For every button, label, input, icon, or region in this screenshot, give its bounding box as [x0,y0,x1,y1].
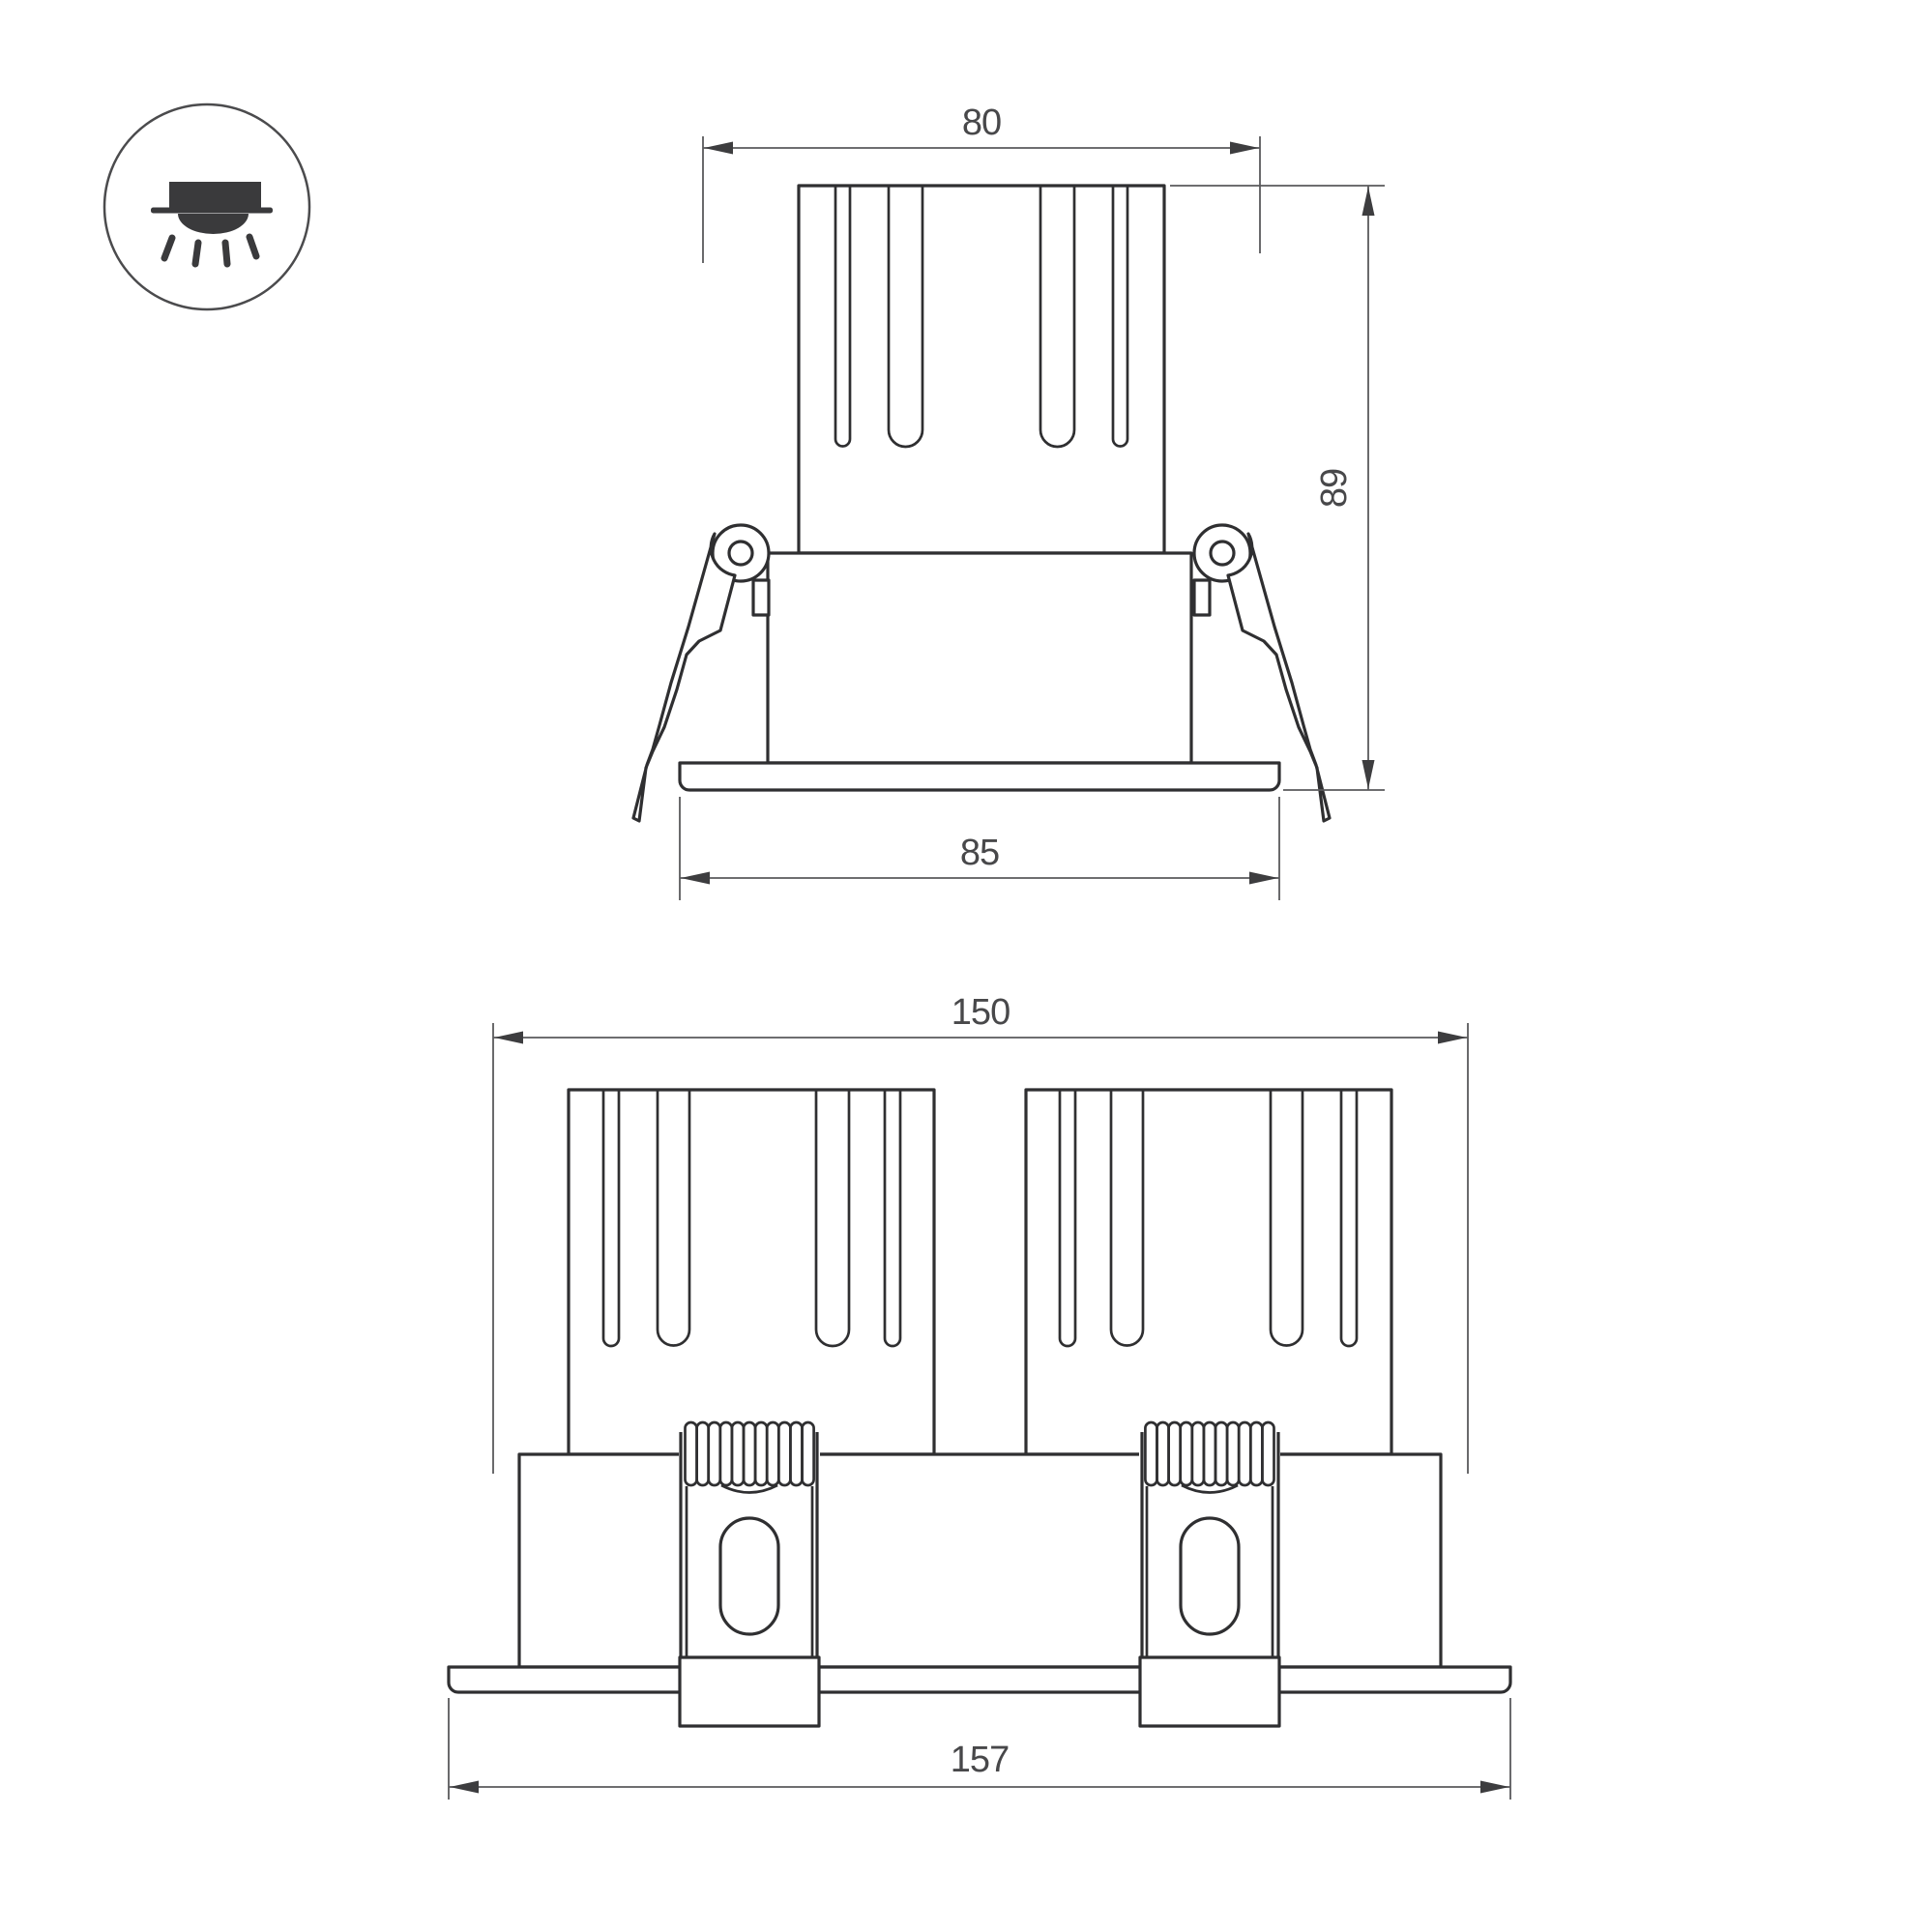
icon-lamp-dome [178,214,249,234]
side-right-heatsink [1026,1090,1391,1454]
dimension-side-flange-width: 157 [449,1698,1510,1800]
side-flange [449,1667,1510,1692]
front-right-bracket-tab [1194,580,1210,615]
side-left-heatsink [569,1090,934,1454]
front-flange-width-label: 85 [960,833,999,873]
side-overall-width-label: 150 [951,992,1010,1033]
side-body [519,1454,1441,1667]
icon-lamp-flange [151,208,273,214]
side-flange-width-label: 157 [951,1740,1009,1780]
front-height-label: 89 [1314,469,1355,508]
icon-lamp-body [169,182,261,208]
dimension-front-height: 89 [1170,186,1385,790]
recessed-downlight-icon [104,104,309,309]
clip-pivot-hole [1211,542,1234,565]
side-view: 150 157 [449,992,1510,1800]
side-right-clamp [1139,1420,1280,1726]
clamp-foot [1140,1657,1279,1726]
front-body [768,553,1191,763]
drawing-page: 80 89 85 [0,0,1932,1932]
dimension-front-flange-width: 85 [680,797,1279,900]
side-left-clamp [679,1420,820,1726]
icon-light-rays [164,237,256,264]
clip-pivot-hole [729,542,752,565]
front-top-width-label: 80 [962,102,1001,143]
clamp-foot [680,1657,819,1726]
front-left-bracket-tab [753,580,769,615]
technical-drawing: 80 89 85 [0,0,1932,1932]
front-heatsink [799,186,1164,553]
front-flange [680,763,1279,790]
front-view: 80 89 85 [633,102,1385,900]
